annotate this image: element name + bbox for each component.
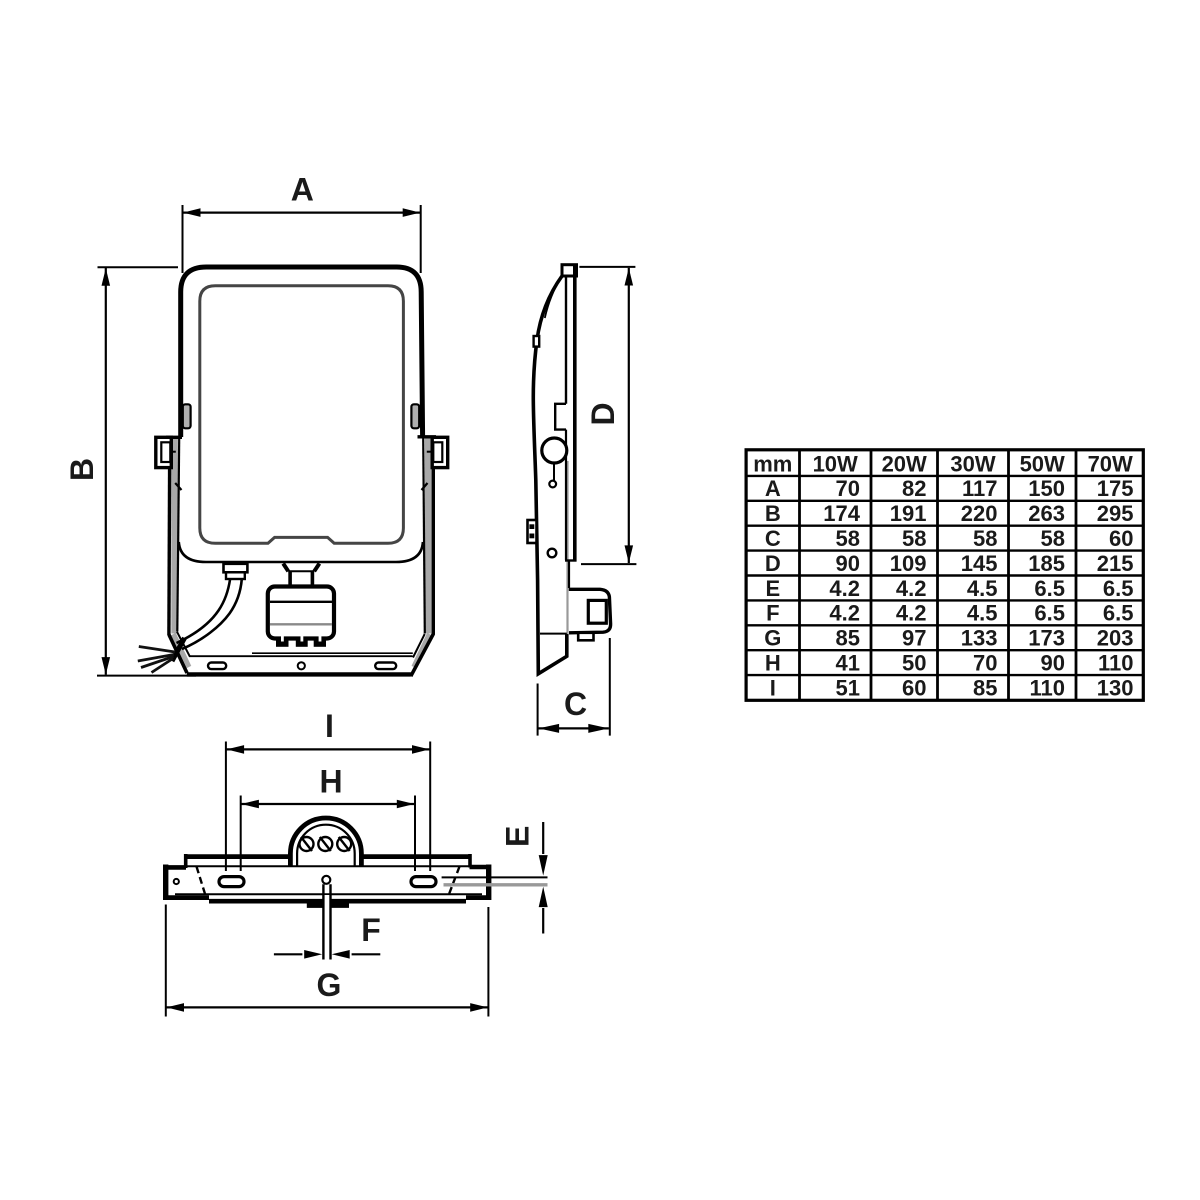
svg-text:70: 70 [973,651,997,676]
svg-text:A: A [765,476,781,501]
svg-text:G: G [316,967,341,1003]
svg-text:mm: mm [753,451,792,476]
svg-text:110: 110 [1098,651,1134,676]
svg-text:B: B [64,458,100,481]
svg-text:A: A [291,172,314,208]
svg-text:B: B [765,501,781,526]
svg-text:C: C [564,686,587,722]
svg-text:60: 60 [902,675,926,700]
svg-text:10W: 10W [813,451,858,476]
svg-text:D: D [765,551,781,576]
svg-text:20W: 20W [882,451,927,476]
svg-text:175: 175 [1097,476,1134,501]
svg-text:85: 85 [973,675,997,700]
svg-text:174: 174 [823,501,860,526]
svg-text:4.5: 4.5 [967,576,998,601]
svg-text:4.2: 4.2 [896,601,927,626]
svg-text:97: 97 [902,626,926,651]
svg-text:173: 173 [1028,626,1065,651]
svg-text:D: D [585,402,621,425]
svg-text:203: 203 [1097,626,1134,651]
svg-text:133: 133 [961,626,998,651]
svg-text:130: 130 [1097,675,1134,700]
svg-text:70: 70 [836,476,860,501]
svg-text:263: 263 [1028,501,1065,526]
svg-text:220: 220 [961,501,998,526]
svg-text:50: 50 [902,651,926,676]
svg-text:4.2: 4.2 [829,576,860,601]
svg-text:6.5: 6.5 [1034,576,1065,601]
svg-text:150: 150 [1028,476,1065,501]
svg-text:51: 51 [836,675,860,700]
svg-text:4.5: 4.5 [967,601,998,626]
svg-text:6.5: 6.5 [1034,601,1065,626]
svg-text:H: H [319,763,342,799]
svg-text:6.5: 6.5 [1103,576,1134,601]
svg-text:295: 295 [1097,501,1134,526]
svg-text:50W: 50W [1020,451,1065,476]
svg-text:60: 60 [1109,526,1133,551]
svg-text:I: I [770,675,776,700]
svg-text:E: E [765,576,780,601]
svg-text:30W: 30W [950,451,995,476]
svg-text:109: 109 [890,551,927,576]
svg-text:41: 41 [836,651,860,676]
svg-text:82: 82 [902,476,926,501]
svg-text:6.5: 6.5 [1103,601,1134,626]
svg-text:I: I [325,708,334,744]
svg-text:F: F [361,912,381,948]
svg-text:117: 117 [962,476,998,501]
svg-text:58: 58 [836,526,860,551]
svg-text:E: E [499,826,535,847]
svg-text:70W: 70W [1088,451,1133,476]
svg-text:H: H [765,651,781,676]
svg-text:85: 85 [836,626,860,651]
svg-text:90: 90 [836,551,860,576]
svg-text:90: 90 [1041,651,1065,676]
svg-text:191: 191 [890,501,927,526]
svg-text:C: C [765,526,781,551]
svg-text:4.2: 4.2 [896,576,927,601]
svg-text:110: 110 [1030,675,1066,700]
svg-text:215: 215 [1097,551,1134,576]
svg-text:58: 58 [1041,526,1065,551]
svg-text:58: 58 [902,526,926,551]
svg-text:58: 58 [973,526,997,551]
svg-text:G: G [764,626,781,651]
svg-text:4.2: 4.2 [829,601,860,626]
svg-text:F: F [766,601,779,626]
svg-text:145: 145 [961,551,998,576]
svg-text:185: 185 [1028,551,1065,576]
